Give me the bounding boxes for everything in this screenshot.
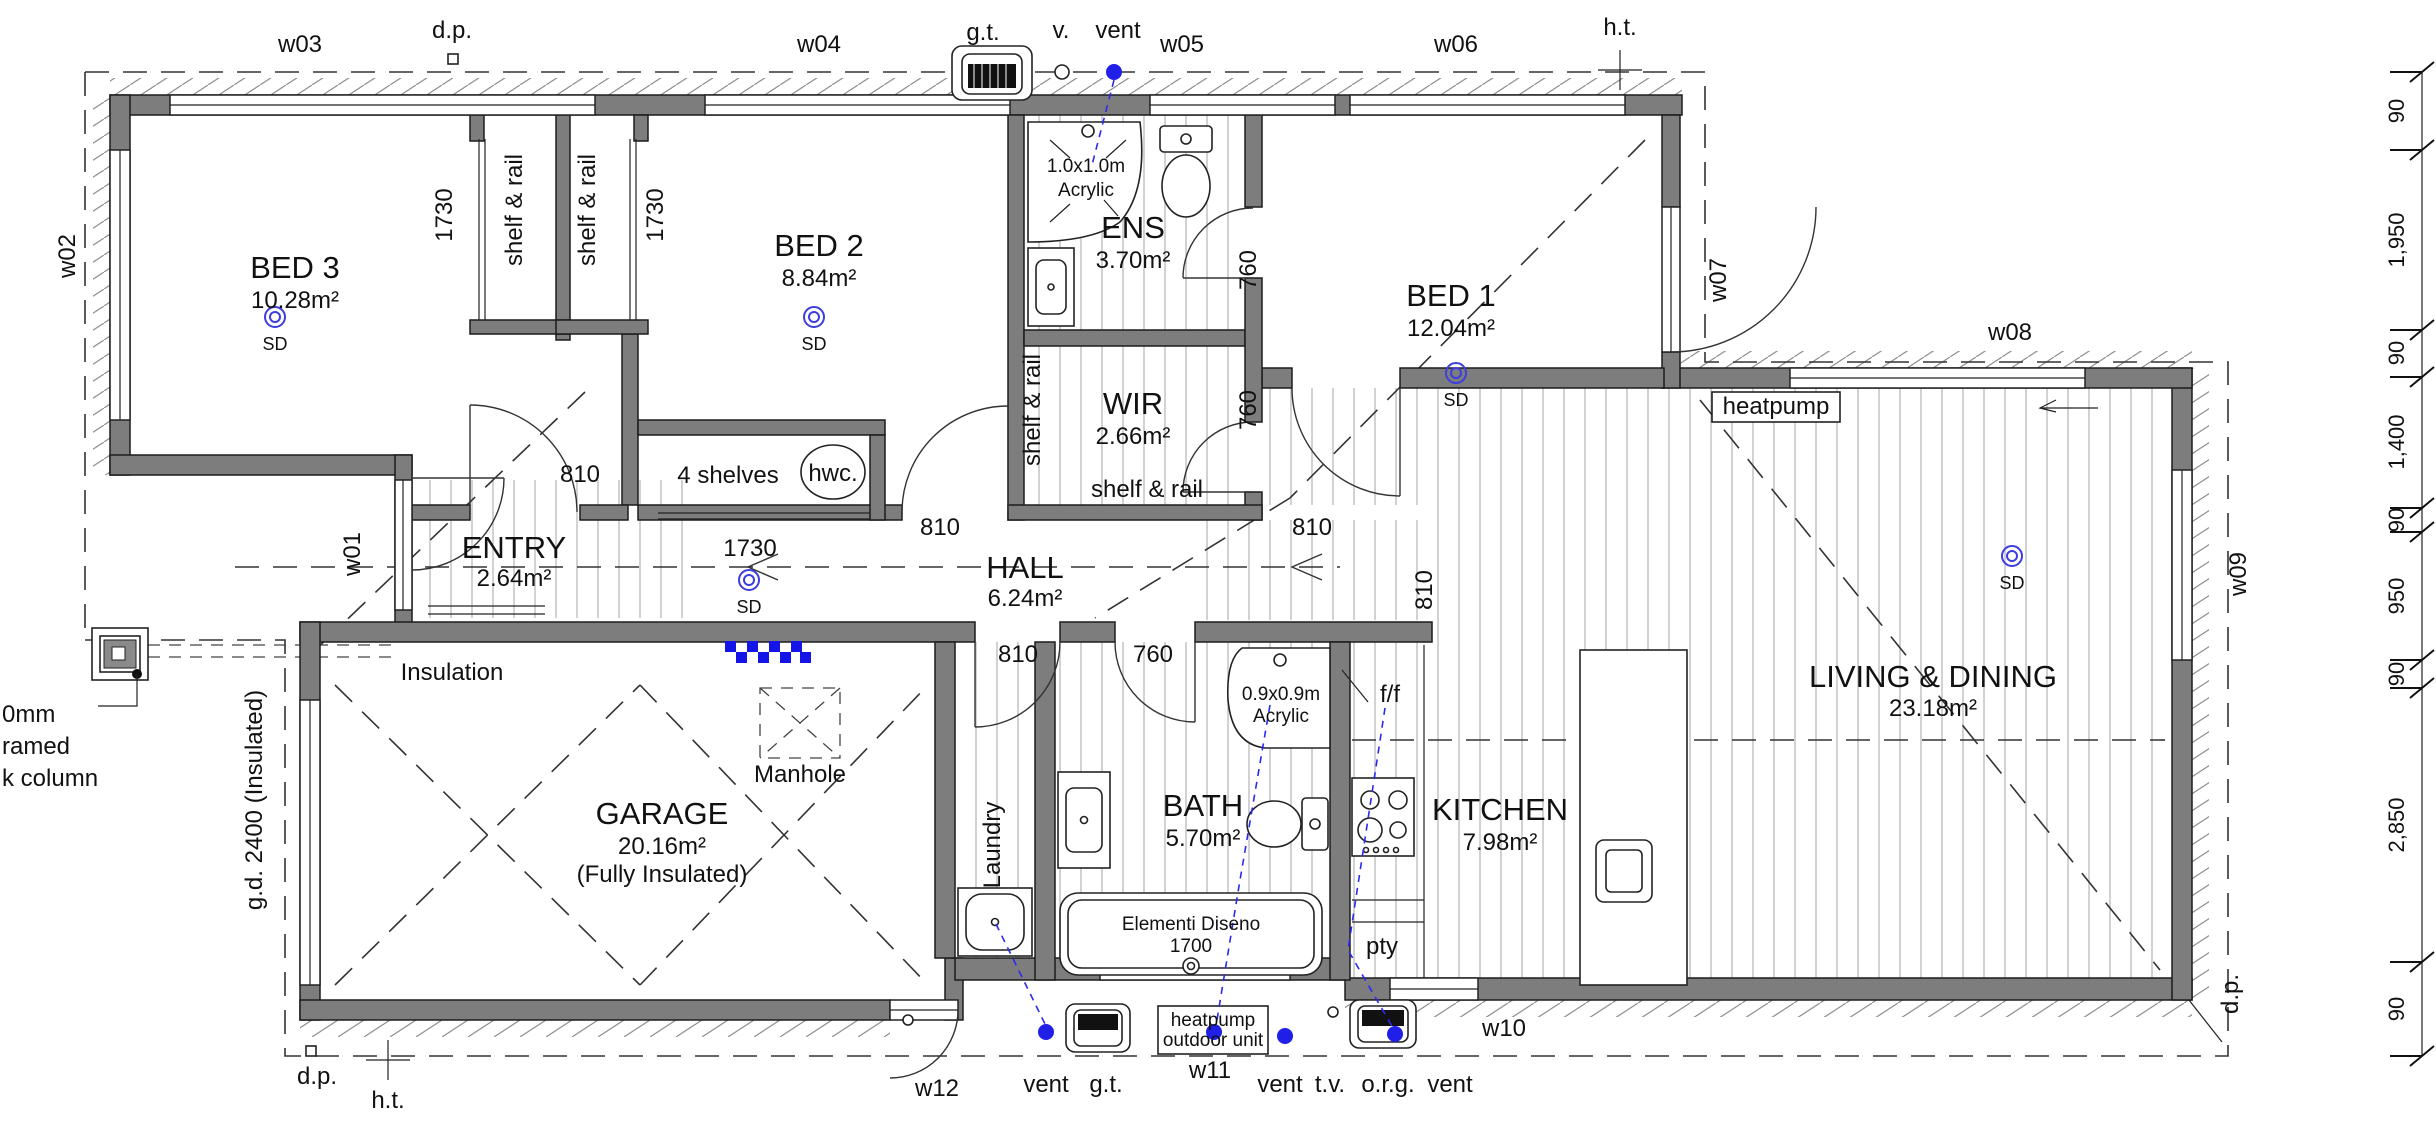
room-garage-note: (Fully Insulated) — [577, 861, 748, 888]
door-760: 760 — [1235, 390, 1262, 430]
room-ens: ENS — [1101, 210, 1165, 245]
door-810: 810 — [920, 514, 960, 541]
label-w01: w01 — [339, 532, 366, 577]
meterboard — [725, 641, 811, 663]
door-810: 810 — [1292, 514, 1332, 541]
bath-shower-material: Acrylic — [1253, 706, 1309, 727]
door-w12 — [890, 1000, 958, 1020]
shelf-rail: shelf & rail — [1019, 354, 1046, 466]
sd-label: SD — [262, 334, 287, 354]
label-w08: w08 — [1987, 319, 2032, 346]
door-810: 810 — [1411, 570, 1438, 610]
manhole-label: Manhole — [754, 761, 846, 788]
room-ens-area: 3.70m² — [1096, 247, 1171, 274]
dp-marker-top — [448, 54, 458, 64]
hp-unit-line1: heatpump — [1171, 1010, 1256, 1031]
label-w04: w04 — [796, 31, 841, 58]
kitchen-island — [1580, 650, 1687, 985]
label-w10: w10 — [1481, 1015, 1526, 1042]
vent-pipe-icon — [903, 1015, 913, 1025]
porch-column — [92, 628, 148, 706]
sd-label: SD — [1999, 573, 2024, 593]
hwc-label: hwc. — [808, 460, 857, 487]
room-kitchen-area: 7.98m² — [1463, 829, 1538, 856]
room-bed1: BED 1 — [1406, 278, 1496, 313]
label-gt: g.t. — [1089, 1071, 1122, 1098]
garage-door-label: g.d. 2400 (Insulated) — [241, 690, 268, 910]
label-dp-right: d.p. — [2217, 974, 2244, 1014]
dim-2850: 2,850 — [2384, 797, 2409, 852]
label-tv: t.v. — [1315, 1071, 1345, 1098]
label-ht-bottom: h.t. — [371, 1087, 404, 1114]
vent-dot-icon — [1106, 64, 1122, 80]
room-kitchen: KITCHEN — [1432, 792, 1568, 827]
vent-pipe-icon — [1055, 65, 1069, 79]
window-w05 — [1150, 95, 1335, 115]
room-wir-area: 2.66m² — [1096, 423, 1171, 450]
dim-90: 90 — [2384, 99, 2409, 123]
floor-plan-page: 90 1,950 90 1,400 90 950 90 2,850 90 BED… — [0, 0, 2436, 1125]
label-w12: w12 — [914, 1075, 959, 1102]
label-w03: w03 — [277, 31, 322, 58]
sd-label: SD — [1443, 390, 1468, 410]
closet-width: 1730 — [723, 535, 776, 562]
label-v-top: v. — [1053, 17, 1070, 44]
ens-shower-material: Acrylic — [1058, 180, 1114, 201]
four-shelves: 4 shelves — [677, 462, 778, 489]
column-note-2: ramed — [2, 733, 70, 760]
room-bed2: BED 2 — [774, 228, 864, 263]
bath-shower-size: 0.9x0.9m — [1242, 684, 1320, 705]
bath-vanity — [1058, 772, 1110, 868]
door-w07 — [1662, 207, 1680, 352]
room-wir: WIR — [1103, 386, 1163, 421]
shelf-rail: shelf & rail — [501, 154, 528, 266]
window-w02 — [110, 150, 130, 420]
garage-door — [300, 700, 320, 985]
window-w03 — [170, 95, 595, 115]
robe-width: 1730 — [431, 188, 458, 241]
dim-90: 90 — [2384, 662, 2409, 686]
label-org: o.r.g. — [1361, 1071, 1414, 1098]
window-w08 — [1790, 368, 2085, 388]
room-garage: GARAGE — [596, 796, 729, 831]
shelf-rail: shelf & rail — [574, 154, 601, 266]
cooktop — [1352, 778, 1414, 856]
robe-width: 1730 — [642, 188, 669, 241]
dim-90: 90 — [2384, 341, 2409, 365]
door-810: 810 — [998, 641, 1038, 668]
insulation-label: Insulation — [401, 659, 504, 686]
ens-shower-size: 1.0x1.0m — [1047, 156, 1125, 177]
vent-dot-icon — [1277, 1028, 1293, 1044]
label-vent: vent — [1257, 1071, 1303, 1098]
hp-unit-line2: outdoor unit — [1163, 1030, 1264, 1051]
gully-trap-icon-top — [952, 46, 1032, 100]
door-760: 760 — [1235, 250, 1262, 290]
dim-1400: 1,400 — [2384, 414, 2409, 469]
heatpump-label: heatpump — [1723, 393, 1830, 420]
room-bed1-area: 12.04m² — [1407, 315, 1495, 342]
smoke-detector-icon — [739, 570, 759, 590]
column-note-1: 0mm — [2, 701, 55, 728]
label-dp-bottom: d.p. — [297, 1063, 337, 1090]
org-grate-icon — [1350, 1000, 1416, 1048]
room-garage-area: 20.16m² — [618, 833, 706, 860]
door-760: 760 — [1133, 641, 1173, 668]
bath-toilet — [1247, 798, 1328, 850]
manhole-symbol — [760, 688, 840, 758]
room-entry-area: 2.64m² — [477, 565, 552, 592]
door-810: 810 — [560, 461, 600, 488]
dim-90: 90 — [2384, 997, 2409, 1021]
window-w09 — [2172, 470, 2192, 660]
vent-dot-icon — [1038, 1024, 1054, 1040]
laundry-tub — [958, 888, 1032, 956]
dim-950: 950 — [2384, 578, 2409, 615]
room-laundry: Laundry — [979, 802, 1006, 889]
dim-90: 90 — [2384, 508, 2409, 532]
room-bed3-area: 10.28m² — [251, 287, 339, 314]
room-living: LIVING & DINING — [1809, 659, 2057, 694]
column-note-3: k column — [2, 765, 98, 792]
room-living-area: 23.18m² — [1889, 695, 1977, 722]
label-w07: w07 — [1705, 258, 1732, 303]
label-vent-top: vent — [1095, 17, 1141, 44]
ens-basin — [1028, 248, 1074, 326]
sd-label: SD — [736, 597, 761, 617]
floor-plan-drawing: 90 1,950 90 1,400 90 950 90 2,850 90 BED… — [0, 0, 2436, 1125]
vent-dot-icon — [1387, 1026, 1403, 1042]
vent-pipe-icon — [1328, 1007, 1338, 1017]
label-vent: vent — [1427, 1071, 1473, 1098]
pty-label: pty — [1366, 933, 1398, 960]
room-bed3: BED 3 — [250, 250, 340, 285]
label-dp-top: d.p. — [432, 17, 472, 44]
dp-marker-bottom — [306, 1046, 316, 1056]
room-hall: HALL — [986, 550, 1064, 585]
room-bed2-area: 8.84m² — [782, 265, 857, 292]
ens-toilet — [1160, 126, 1212, 217]
label-gt-top: g.t. — [966, 19, 999, 46]
label-w02: w02 — [54, 234, 81, 279]
window-w06 — [1350, 95, 1625, 115]
ff-label: f/f — [1380, 681, 1400, 708]
label-ht-top: h.t. — [1603, 14, 1636, 41]
tub-size: 1700 — [1170, 936, 1212, 957]
dimension-chain: 90 1,950 90 1,400 90 950 90 2,850 90 — [2384, 62, 2434, 1066]
room-entry: ENTRY — [462, 530, 567, 565]
ht-marker-bottom — [366, 1040, 410, 1080]
label-w11: w11 — [1188, 1057, 1231, 1084]
smoke-detector-icon — [804, 307, 824, 327]
label-w05: w05 — [1159, 31, 1204, 58]
gully-trap-icon-bottom — [1066, 1004, 1130, 1052]
room-hall-area: 6.24m² — [988, 585, 1063, 612]
window-w01 — [395, 480, 412, 610]
shelf-rail: shelf & rail — [1091, 476, 1203, 503]
dim-1950: 1,950 — [2384, 212, 2409, 267]
sd-label: SD — [801, 334, 826, 354]
room-bath-area: 5.70m² — [1166, 825, 1241, 852]
label-w06: w06 — [1433, 31, 1478, 58]
window-w10 — [1390, 978, 1478, 1000]
label-w09: w09 — [2225, 552, 2252, 597]
label-vent: vent — [1023, 1071, 1069, 1098]
room-bath: BATH — [1163, 788, 1243, 823]
tub-brand: Elementi Diseno — [1122, 914, 1260, 935]
